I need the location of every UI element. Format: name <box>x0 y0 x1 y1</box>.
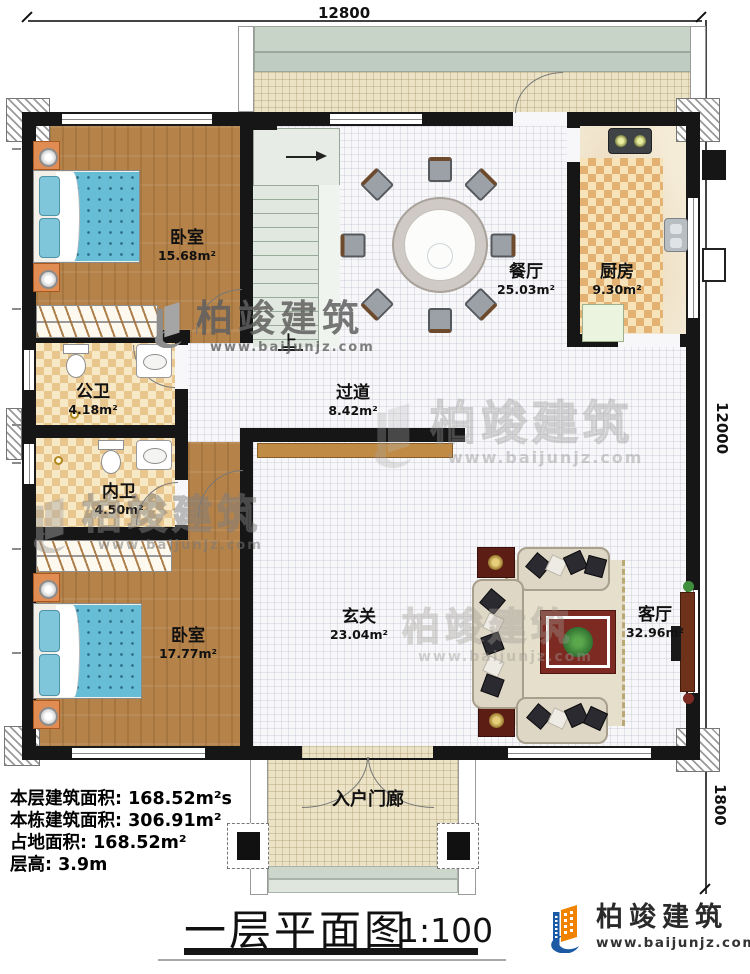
wardrobe <box>36 305 158 338</box>
room-label-public-bath: 公卫 4.18m² <box>33 382 153 417</box>
passage-kitchen <box>618 334 680 347</box>
terrace-planter-strip <box>254 26 692 52</box>
room-area: 4.50m² <box>59 502 179 517</box>
toilet-tank <box>98 440 124 450</box>
pillow <box>39 610 60 652</box>
plant <box>683 581 694 592</box>
nightstand <box>33 263 60 292</box>
stairs-side-flight <box>318 185 340 347</box>
room-name: 玄关 <box>299 607 419 627</box>
stats-label: 占地面积: <box>10 833 87 853</box>
wall-tick <box>12 652 21 654</box>
stats-line: 占地面积: 168.52m² <box>10 832 232 854</box>
toilet-bowl <box>101 450 121 474</box>
side-table <box>477 547 515 578</box>
room-label-private-bath: 内卫 4.50m² <box>59 482 179 517</box>
title-underline-thin <box>158 959 506 961</box>
stairs-direction-line <box>286 156 318 158</box>
room-label-hallway: 过道 8.42m² <box>293 383 413 418</box>
dimension-porch-value: 1800 <box>711 784 729 828</box>
stats-label: 层高: <box>10 855 52 875</box>
stove-burner <box>634 135 646 147</box>
sink-basin <box>670 224 682 234</box>
dining-chair <box>341 234 366 258</box>
side-table-ornament <box>488 555 503 570</box>
window-bedroom1 <box>62 112 212 126</box>
porch-step <box>268 879 458 893</box>
brand-url: www.baijunjz.com <box>596 935 750 951</box>
toilet-bowl <box>66 354 86 378</box>
terrace-planter-strip <box>254 52 692 72</box>
stats-value: 168.52m² <box>93 833 186 853</box>
room-area: 32.96m² <box>595 625 715 640</box>
pillow <box>39 176 60 216</box>
toilet-tank <box>63 344 89 354</box>
stairs-arrow-icon <box>316 151 327 161</box>
flue-box <box>702 248 726 282</box>
wall-tick <box>12 462 21 464</box>
title-underline <box>184 948 478 955</box>
room-area: 4.18m² <box>33 402 153 417</box>
terrace-floor <box>254 72 692 112</box>
pillow <box>39 218 60 258</box>
stats-label: 本栋建筑面积: <box>10 811 122 831</box>
room-name: 厨房 <box>557 262 677 282</box>
pillow <box>39 654 60 696</box>
nightstand <box>33 141 60 170</box>
stats-line: 层高: 3.9m <box>10 854 232 876</box>
door-opening-terrace <box>513 112 567 126</box>
room-label-foyer: 玄关 23.04m² <box>299 607 419 642</box>
wardrobe <box>36 540 172 572</box>
room-name: 内卫 <box>59 482 179 502</box>
dimension-line-top <box>28 20 702 22</box>
wall-hall-south <box>240 428 465 442</box>
dining-chair <box>428 308 452 333</box>
stats-block: 本层建筑面积: 168.52m²s 本栋建筑面积: 306.91m² 占地面积:… <box>10 788 232 876</box>
window-dining <box>330 112 422 126</box>
dining-chair <box>491 234 516 258</box>
fridge <box>582 304 624 342</box>
porch-column <box>227 823 269 869</box>
shoe-cabinet <box>257 443 453 458</box>
plant <box>563 627 593 657</box>
wall-tick <box>12 308 21 310</box>
window-kitchen <box>686 198 700 318</box>
room-label-bedroom2: 卧室 17.77m² <box>128 626 248 661</box>
stairs-treads <box>253 185 318 347</box>
door-opening-public-bath <box>175 345 188 389</box>
sink-basin <box>670 238 682 248</box>
stats-line: 本层建筑面积: 168.52m²s <box>10 788 232 810</box>
stairs-up-underline <box>278 349 303 351</box>
wall-tick <box>12 148 21 150</box>
kitchen-sink <box>664 218 688 252</box>
room-name: 过道 <box>293 383 413 403</box>
room-area: 9.30m² <box>557 282 677 297</box>
bed <box>33 603 142 699</box>
brand-name: 柏竣建筑 <box>596 903 750 933</box>
stove <box>608 128 652 154</box>
room-label-porch: 入户门廊 <box>308 789 428 811</box>
exterior-pillar <box>702 150 726 180</box>
porch-column-core <box>447 832 470 860</box>
stove-burner <box>615 135 627 147</box>
window-living-south <box>508 746 651 760</box>
wall-stair-stub <box>253 112 277 130</box>
room-name: 客厅 <box>595 605 715 625</box>
side-table-ornament <box>489 713 504 728</box>
stats-line: 本栋建筑面积: 306.91m² <box>10 810 232 832</box>
dimension-right-value: 12000 <box>713 402 731 466</box>
wall-bath-bedroom2 <box>22 527 188 540</box>
porch-step <box>268 866 458 879</box>
brand-logo-icon <box>546 903 588 953</box>
room-name: 公卫 <box>33 382 153 402</box>
room-name: 卧室 <box>128 626 248 646</box>
pilaster <box>6 408 22 460</box>
brand-logo: 柏竣建筑 www.baijunjz.com <box>546 903 750 953</box>
stats-value: 306.91m² <box>128 811 221 831</box>
wall-tick <box>12 548 21 550</box>
porch-column <box>437 823 479 869</box>
room-label-bedroom1: 卧室 15.68m² <box>127 228 247 263</box>
terrace-column-strip <box>238 26 254 112</box>
room-name: 入户门廊 <box>308 789 428 811</box>
plan-scale: 1:100 <box>398 911 493 950</box>
room-name: 卧室 <box>127 228 247 248</box>
nightstand <box>33 573 60 602</box>
dining-chair <box>428 157 452 182</box>
stats-value: 3.9m <box>58 855 107 875</box>
bed <box>33 170 140 263</box>
sink <box>136 344 172 378</box>
window-bedroom2 <box>72 746 205 760</box>
room-label-kitchen: 厨房 9.30m² <box>557 262 677 297</box>
nightstand <box>33 700 60 729</box>
wall-bath-divider <box>22 425 188 438</box>
room-area: 8.42m² <box>293 403 413 418</box>
sink <box>136 440 172 470</box>
stats-value: 168.52m²s <box>128 789 232 809</box>
door-opening-kitchen <box>567 128 580 162</box>
room-area: 15.68m² <box>127 248 247 263</box>
room-label-living: 客厅 32.96m² <box>595 605 715 640</box>
room-area: 23.04m² <box>299 627 419 642</box>
porch-column-core <box>237 832 260 860</box>
room-area: 17.77m² <box>128 646 248 661</box>
plant-pot <box>683 693 694 704</box>
brand-text-group: 柏竣建筑 www.baijunjz.com <box>596 903 750 951</box>
floor-plan-canvas: 12800 12000 1800 上 <box>0 0 750 974</box>
wall-tick <box>12 424 21 426</box>
stats-label: 本层建筑面积: <box>10 789 122 809</box>
window-private-bath <box>22 444 36 484</box>
floor-drain <box>54 456 63 465</box>
dining-table-center <box>427 243 453 269</box>
